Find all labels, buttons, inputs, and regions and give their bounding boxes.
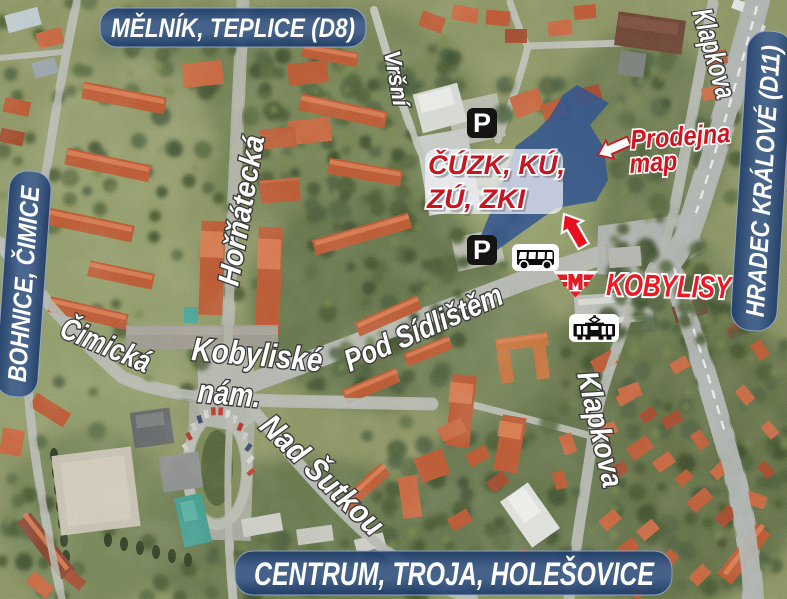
svg-text:map: map (628, 146, 678, 179)
svg-text:ČÚZK, KÚ,: ČÚZK, KÚ, (428, 149, 565, 180)
svg-text:MĚLNÍK, TEPLICE (D8): MĚLNÍK, TEPLICE (D8) (111, 12, 355, 43)
svg-text:CENTRUM, TROJA, HOLEŠOVICE: CENTRUM, TROJA, HOLEŠOVICE (254, 556, 655, 592)
svg-text:nám.: nám. (196, 372, 262, 414)
svg-text:ZÚ, ZKI: ZÚ, ZKI (426, 183, 526, 214)
svg-text:KOBYLISY: KOBYLISY (606, 267, 734, 305)
svg-text:P: P (473, 235, 491, 265)
svg-text:P: P (473, 108, 491, 138)
